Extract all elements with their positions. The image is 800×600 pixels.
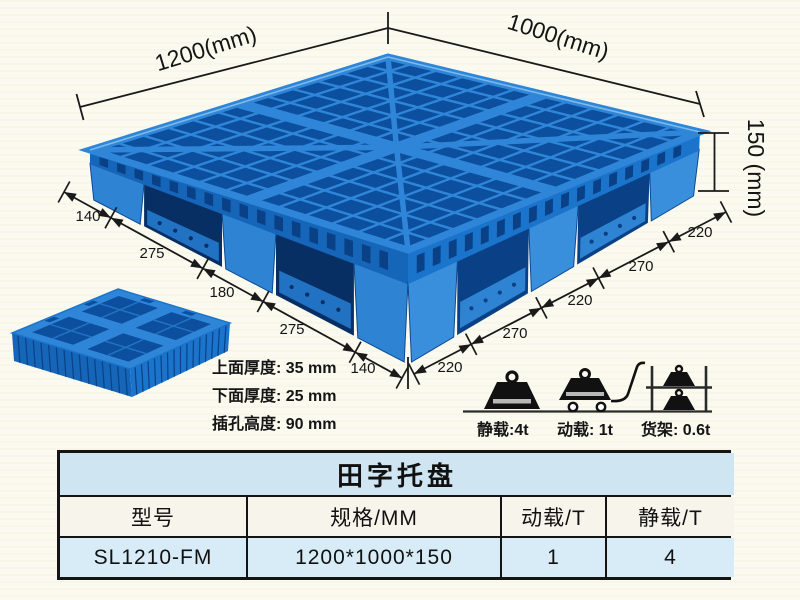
dynamic-load-cart-icon bbox=[559, 363, 645, 411]
edge-dim-label: 270 bbox=[628, 258, 653, 275]
col-header-size: 规格/MM bbox=[248, 497, 500, 536]
edge-dim-label: 220 bbox=[687, 224, 712, 241]
col-header-dynamic-load: 动载/T bbox=[502, 497, 605, 536]
small-pallet-underside-illustration bbox=[12, 289, 230, 397]
size-value: 1200*1000*150 bbox=[248, 538, 500, 577]
edge-dim-label: 275 bbox=[139, 245, 164, 262]
edge-dim-label: 140 bbox=[350, 360, 375, 377]
fork-height-note: 插孔高度: 90 mm bbox=[212, 414, 336, 433]
top-thickness-note: 上面厚度: 35 mm bbox=[212, 358, 336, 377]
static-load-value: 4 bbox=[607, 538, 734, 577]
length-dimension-label: 1200(mm) bbox=[152, 21, 260, 77]
width-dimension-label: 1000(mm) bbox=[505, 8, 613, 64]
edge-dim-label: 140 bbox=[75, 208, 100, 225]
spec-table-title: 田字托盘 bbox=[60, 453, 734, 495]
col-header-static-load: 静载/T bbox=[607, 497, 734, 536]
edge-dim-label: 275 bbox=[279, 321, 304, 338]
height-dimension-label: 150 (mm) bbox=[743, 119, 769, 217]
dynamic-load-value: 1 bbox=[502, 538, 605, 577]
rack-load-shelf-icon bbox=[646, 366, 712, 412]
rack-load-label: 货架: 0.6t bbox=[641, 420, 711, 439]
spec-table: 田字托盘 型号 规格/MM 动载/T 静载/T SL1210-FM 1200*1… bbox=[57, 450, 731, 580]
edge-dim-label: 270 bbox=[502, 325, 527, 342]
load-rating-icons bbox=[463, 363, 712, 412]
col-header-model: 型号 bbox=[60, 497, 246, 536]
static-load-label: 静载:4t bbox=[477, 420, 529, 439]
edge-dim-label: 220 bbox=[567, 292, 592, 309]
static-load-weight-icon bbox=[484, 372, 540, 409]
edge-dim-label: 220 bbox=[437, 359, 462, 376]
bottom-thickness-note: 下面厚度: 25 mm bbox=[212, 386, 336, 405]
dynamic-load-label: 动载: 1t bbox=[557, 421, 614, 439]
model-value: SL1210-FM bbox=[60, 538, 246, 577]
edge-dim-label: 180 bbox=[209, 284, 234, 301]
